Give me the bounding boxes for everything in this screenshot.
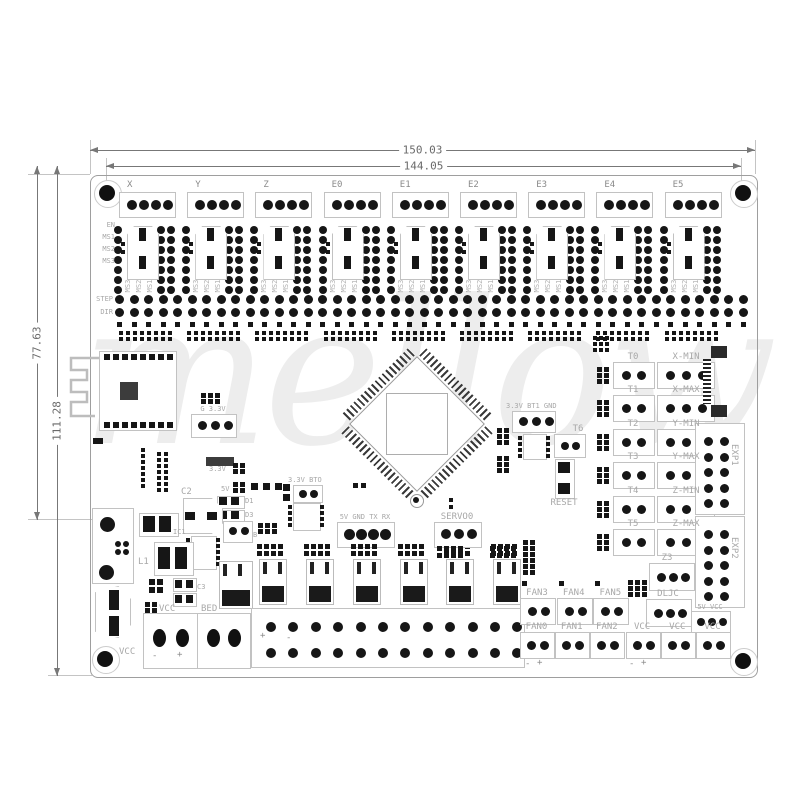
- stepper-driver-block: E1 MS3 MS2 MS1: [386, 176, 452, 356]
- pad: [686, 337, 690, 341]
- ms1-label: MS1: [351, 275, 360, 297]
- smd-pad: [530, 250, 534, 254]
- pad: [625, 322, 630, 327]
- smd-pad: [685, 228, 692, 241]
- pad: [681, 573, 690, 582]
- dimension-height-left: 77.63: [37, 166, 38, 520]
- pad: [610, 641, 619, 650]
- pin-row-label-step: STEP: [91, 296, 113, 303]
- pad: [400, 622, 410, 632]
- pad: [682, 404, 691, 413]
- pad: [351, 551, 356, 556]
- pad: [566, 286, 574, 294]
- pad: [424, 200, 434, 210]
- pad: [440, 286, 448, 294]
- pad: [412, 200, 422, 210]
- pad: [548, 200, 558, 210]
- pad: [182, 266, 190, 274]
- pad: [149, 422, 155, 428]
- mosfet: [353, 559, 381, 605]
- pad: [241, 527, 249, 535]
- pad: [440, 256, 448, 264]
- pad: [455, 266, 463, 274]
- smd-pad: [522, 581, 527, 586]
- pad: [637, 308, 646, 317]
- pad: [114, 286, 122, 294]
- pad: [597, 373, 602, 378]
- pad: [495, 331, 499, 335]
- pad: [507, 295, 516, 304]
- pad: [601, 607, 610, 616]
- ic1-chip: [191, 536, 217, 570]
- pad: [157, 476, 161, 480]
- pcb-layout-diagram: mellow 150.03 144.05 77.63 111.28 EN MS1…: [0, 0, 800, 800]
- mounting-hole: [92, 646, 120, 674]
- pad: [420, 308, 429, 317]
- pad: [604, 434, 609, 439]
- pad: [157, 452, 161, 456]
- pad: [591, 226, 599, 234]
- smd-pad: [394, 242, 398, 246]
- pad: [576, 286, 584, 294]
- pad: [123, 549, 129, 555]
- pad: [700, 331, 704, 335]
- pad: [528, 331, 532, 335]
- pad: [576, 266, 584, 274]
- pad: [608, 308, 617, 317]
- pad: [622, 471, 631, 480]
- pad: [624, 337, 628, 341]
- pad: [115, 295, 124, 304]
- reset-button: [555, 459, 575, 499]
- pad: [187, 331, 191, 335]
- smd-pad: [121, 242, 125, 246]
- pad: [161, 337, 165, 341]
- pad: [229, 527, 237, 535]
- pad: [556, 337, 560, 341]
- stepper-driver-block: Z MS3 MS2 MS1: [249, 176, 315, 356]
- pad: [528, 337, 532, 341]
- pad: [207, 200, 217, 210]
- dimension-value: 77.63: [31, 322, 44, 363]
- smd-pad: [109, 590, 119, 610]
- pad: [104, 422, 110, 428]
- pad: [332, 200, 342, 210]
- pad: [320, 517, 324, 521]
- pad: [703, 226, 711, 234]
- pad: [113, 422, 119, 428]
- pad: [665, 331, 669, 335]
- pad: [378, 322, 383, 327]
- pad: [194, 337, 198, 341]
- bt0-label: 3.3V BTO: [288, 477, 322, 484]
- pad: [637, 438, 646, 447]
- pad: [682, 505, 691, 514]
- pad: [303, 266, 311, 274]
- pad: [413, 337, 417, 341]
- pad: [320, 511, 324, 515]
- pad: [610, 331, 614, 335]
- pad: [303, 226, 311, 234]
- pad: [494, 322, 499, 327]
- pad: [556, 331, 560, 335]
- t6-header: [554, 434, 586, 458]
- pad: [187, 337, 191, 341]
- dimension-value: 111.28: [51, 397, 64, 445]
- fan-header: [555, 632, 590, 659]
- mosfet-bed: [219, 561, 253, 609]
- pad: [622, 505, 631, 514]
- pad: [430, 226, 438, 234]
- pad: [380, 529, 391, 540]
- pad: [246, 308, 255, 317]
- pad: [311, 648, 321, 658]
- pad: [250, 286, 258, 294]
- smd-pad: [412, 228, 419, 241]
- driver-plug-connector: [187, 192, 244, 218]
- pad: [720, 437, 729, 446]
- thermistor-label: T0: [613, 353, 653, 362]
- pad: [311, 544, 316, 549]
- pad: [236, 331, 240, 335]
- pad: [604, 473, 609, 478]
- pad: [672, 337, 676, 341]
- smd-pad: [548, 228, 555, 241]
- pad: [140, 422, 146, 428]
- pad: [167, 256, 175, 264]
- smd-pad: [480, 256, 487, 269]
- pad: [617, 331, 621, 335]
- pad: [597, 446, 602, 451]
- pad: [560, 200, 570, 210]
- fan-label: VCC: [696, 623, 729, 632]
- pad: [597, 534, 602, 539]
- pad: [345, 331, 349, 335]
- pad: [164, 488, 168, 492]
- pad: [154, 337, 158, 341]
- pad: [498, 226, 506, 234]
- pad: [297, 337, 301, 341]
- terminal-pad: [207, 629, 220, 647]
- pad: [235, 266, 243, 274]
- pad: [597, 434, 602, 439]
- pad: [304, 551, 309, 556]
- pad: [628, 200, 638, 210]
- pad: [545, 417, 554, 426]
- pad: [167, 422, 173, 428]
- pad: [518, 454, 522, 458]
- pad: [333, 622, 343, 632]
- pad: [511, 553, 516, 558]
- pad: [604, 440, 609, 445]
- mcu-chip: [349, 356, 485, 492]
- pad: [497, 553, 502, 558]
- pad: [364, 322, 369, 327]
- pin-row-label-ms2: MS2: [93, 246, 115, 253]
- pad: [122, 422, 128, 428]
- pad: [175, 322, 180, 327]
- pad: [299, 200, 309, 210]
- smd-pad: [143, 516, 155, 532]
- pad: [490, 648, 500, 658]
- pad: [378, 648, 388, 658]
- pad: [215, 399, 220, 404]
- pad: [288, 648, 298, 658]
- pad: [362, 286, 370, 294]
- fan-header: [557, 598, 593, 625]
- pad: [637, 538, 646, 547]
- fan-label: VCC: [661, 623, 694, 632]
- pad: [117, 322, 122, 327]
- pad: [222, 337, 226, 341]
- pad: [406, 331, 410, 335]
- pad: [422, 322, 427, 327]
- pad: [624, 331, 628, 335]
- stepper-driver-block: E0 MS3 MS2 MS1: [318, 176, 384, 356]
- pad: [393, 322, 398, 327]
- pad: [222, 331, 226, 335]
- ms3-label: MS3: [533, 275, 542, 297]
- smd-pad: [189, 250, 193, 254]
- mosfet: [493, 559, 521, 605]
- pad: [480, 200, 490, 210]
- pad: [365, 551, 370, 556]
- pin-row-label-dir: DIR: [91, 309, 113, 316]
- pad: [250, 276, 258, 284]
- pad: [387, 286, 395, 294]
- pad: [392, 337, 396, 341]
- pad: [666, 438, 675, 447]
- smd-pad: [598, 250, 602, 254]
- fan-header: [696, 632, 731, 659]
- pad: [115, 541, 121, 547]
- pad: [430, 286, 438, 294]
- pad: [549, 337, 553, 341]
- smd-pad: [449, 498, 453, 502]
- pad: [523, 256, 531, 264]
- pad: [304, 308, 313, 317]
- smd-pad: [548, 256, 555, 269]
- pad: [391, 308, 400, 317]
- pad: [713, 256, 721, 264]
- thermistor-label: T1: [613, 386, 653, 395]
- pad: [657, 573, 666, 582]
- pad: [638, 331, 642, 335]
- pad: [604, 540, 609, 545]
- pad: [240, 463, 245, 468]
- pad: [508, 266, 516, 274]
- smd-pad: [185, 512, 195, 520]
- pad: [488, 331, 492, 335]
- smd-pad: [158, 547, 170, 569]
- pad: [115, 308, 124, 317]
- fan-header: [590, 632, 625, 659]
- ms1-label: MS1: [487, 275, 496, 297]
- smd-pad: [93, 438, 103, 444]
- pad: [283, 337, 287, 341]
- pad: [373, 331, 377, 335]
- pad: [419, 544, 424, 549]
- pad: [604, 479, 609, 484]
- pad: [168, 337, 172, 341]
- pad: [644, 266, 652, 274]
- pad: [276, 337, 280, 341]
- pad: [521, 295, 530, 304]
- pad: [541, 607, 550, 616]
- pad: [490, 546, 495, 551]
- ms2-label: MS2: [203, 275, 212, 297]
- pad: [368, 529, 379, 540]
- pad: [720, 468, 729, 477]
- driver-label: E5: [673, 181, 684, 190]
- pad: [445, 622, 455, 632]
- pad: [572, 442, 580, 450]
- pad: [682, 471, 691, 480]
- minus-mark: -: [525, 660, 530, 669]
- pad: [518, 442, 522, 446]
- pad: [492, 308, 501, 317]
- pad: [523, 286, 531, 294]
- pad: [682, 538, 691, 547]
- pad: [604, 406, 609, 411]
- pad: [455, 286, 463, 294]
- pad: [578, 607, 587, 616]
- v5-label: 5V: [221, 486, 229, 493]
- pad: [288, 505, 292, 509]
- pad: [351, 544, 356, 549]
- io-row: T1 X-MAX: [597, 386, 717, 420]
- pad: [509, 331, 513, 335]
- pad: [344, 200, 354, 210]
- pad: [231, 200, 241, 210]
- pad: [637, 471, 646, 480]
- pad: [458, 553, 463, 558]
- pad: [240, 482, 245, 487]
- button-pad: [558, 462, 570, 473]
- pad: [644, 286, 652, 294]
- pad: [481, 331, 485, 335]
- pad: [693, 337, 697, 341]
- pad: [201, 331, 205, 335]
- pad: [303, 276, 311, 284]
- pad: [546, 454, 550, 458]
- fuse-holder: [92, 508, 134, 584]
- pad: [145, 602, 150, 607]
- pad: [640, 200, 650, 210]
- pad: [596, 322, 601, 327]
- pad: [320, 505, 324, 509]
- pad: [635, 586, 640, 591]
- pad: [579, 308, 588, 317]
- pad: [518, 448, 522, 452]
- pad: [604, 546, 609, 551]
- ms1-label: MS1: [214, 275, 223, 297]
- pad: [372, 266, 380, 274]
- driver-label: Y: [195, 181, 200, 190]
- pad: [434, 295, 443, 304]
- exp1-label: EXP1: [729, 444, 739, 466]
- fan-header: [626, 632, 661, 659]
- pad: [604, 367, 609, 372]
- pad: [361, 483, 366, 488]
- pad: [530, 558, 535, 563]
- ffc-connector: [703, 359, 711, 404]
- smd-pad: [257, 242, 261, 246]
- pad: [709, 200, 719, 210]
- pad: [320, 322, 325, 327]
- pad: [299, 490, 307, 498]
- pad: [704, 499, 713, 508]
- pad: [654, 322, 659, 327]
- pad: [235, 276, 243, 284]
- pad: [229, 331, 233, 335]
- pad: [130, 308, 139, 317]
- pad: [449, 308, 458, 317]
- pad: [225, 286, 233, 294]
- pad: [704, 561, 713, 570]
- pad: [356, 529, 367, 540]
- pad: [208, 393, 213, 398]
- pad: [604, 513, 609, 518]
- pad: [440, 226, 448, 234]
- pad: [372, 286, 380, 294]
- pad: [570, 331, 574, 335]
- ms2-label: MS2: [544, 275, 553, 297]
- pad: [161, 322, 166, 327]
- pad: [236, 337, 240, 341]
- pad: [567, 322, 572, 327]
- pad: [645, 337, 649, 341]
- pad: [635, 580, 640, 585]
- pad: [372, 236, 380, 244]
- pad: [126, 331, 130, 335]
- pad: [497, 440, 502, 445]
- l1-label: L1: [138, 558, 149, 567]
- pad: [714, 331, 718, 335]
- smd-pad: [413, 497, 419, 503]
- d3-label: D3: [245, 512, 253, 519]
- pad: [319, 286, 327, 294]
- pad: [542, 331, 546, 335]
- fan-connector-unit: VCC: [661, 623, 696, 667]
- pad: [546, 436, 550, 440]
- pad: [591, 286, 599, 294]
- pad: [164, 482, 168, 486]
- pad: [271, 544, 276, 549]
- pad: [201, 337, 205, 341]
- pad: [262, 322, 267, 327]
- smd-pad: [219, 497, 227, 505]
- pad: [454, 529, 464, 539]
- pad: [208, 337, 212, 341]
- endstop-label: Z-MIN: [657, 487, 715, 496]
- pad: [468, 200, 478, 210]
- pad: [628, 580, 633, 585]
- pad: [561, 442, 569, 450]
- ms1-label: MS1: [282, 275, 291, 297]
- pad: [288, 523, 292, 527]
- pad: [318, 544, 323, 549]
- stepper-driver-block: E4 MS3 MS2 MS1: [590, 176, 656, 356]
- terminal-pad: [153, 629, 166, 647]
- pad: [262, 331, 266, 335]
- exp2-connector: [695, 516, 745, 608]
- pad: [597, 440, 602, 445]
- pad: [637, 295, 646, 304]
- pad: [304, 331, 308, 335]
- pad: [372, 226, 380, 234]
- pad: [693, 331, 697, 335]
